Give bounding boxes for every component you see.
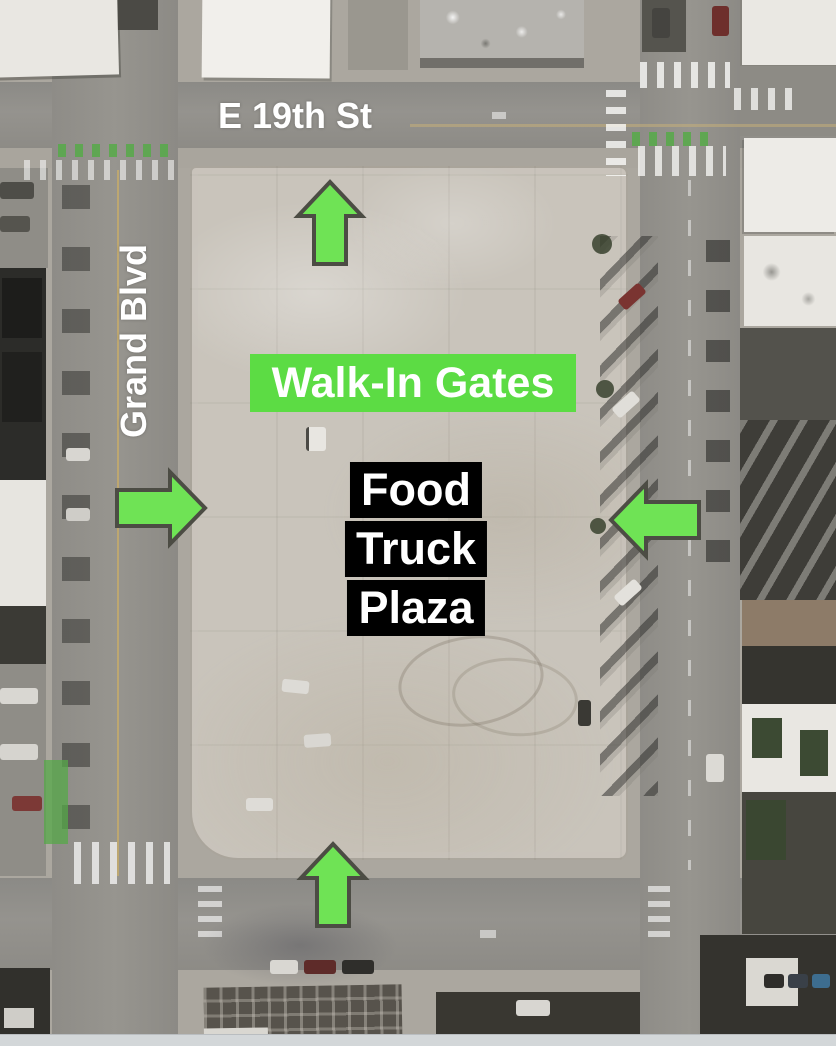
courtyard-landscaping bbox=[752, 718, 782, 758]
parked-car bbox=[516, 1000, 550, 1016]
building-roof bbox=[742, 646, 836, 704]
crosswalk bbox=[648, 886, 670, 942]
tree bbox=[590, 518, 606, 534]
lane-marking bbox=[480, 930, 496, 938]
building-roof bbox=[742, 600, 836, 646]
building-roof bbox=[4, 1008, 34, 1028]
street-label-e-19th-st: E 19th St bbox=[218, 95, 372, 137]
parked-car bbox=[712, 6, 729, 36]
walk-in-gates-label: Walk-In Gates bbox=[250, 354, 576, 412]
crosswalk bbox=[606, 90, 626, 176]
parked-cars bbox=[706, 240, 730, 570]
plaza-label-line: Plaza bbox=[347, 580, 484, 636]
building-roof bbox=[202, 0, 331, 79]
parked-car bbox=[0, 216, 30, 232]
building-roof bbox=[118, 0, 158, 30]
crosswalk bbox=[74, 842, 170, 884]
bike-lane-marking bbox=[58, 144, 176, 157]
crosswalk bbox=[638, 146, 726, 176]
parked-car bbox=[0, 182, 34, 199]
parked-car bbox=[652, 8, 670, 38]
arrow-left-icon bbox=[608, 480, 702, 560]
courtyard-landscaping bbox=[800, 730, 828, 776]
bike-lane-marking bbox=[632, 132, 712, 146]
parked-car bbox=[12, 796, 42, 811]
building-roof bbox=[0, 480, 46, 606]
parked-car bbox=[304, 733, 332, 748]
parked-car bbox=[578, 700, 591, 726]
parked-car bbox=[0, 688, 38, 704]
crosswalk bbox=[640, 62, 730, 88]
building-roof bbox=[420, 0, 584, 68]
parked-car bbox=[342, 960, 374, 974]
arrow-up-icon bbox=[298, 840, 368, 930]
parked-car bbox=[304, 960, 336, 974]
building-roof bbox=[2, 278, 42, 338]
parked-car bbox=[281, 679, 309, 695]
parked-car bbox=[764, 974, 784, 988]
building-roof bbox=[744, 138, 836, 232]
crosswalk bbox=[24, 160, 174, 180]
food-truck-plaza-label: Food Truck Plaza bbox=[345, 462, 487, 636]
building-roof bbox=[742, 0, 836, 65]
parked-van bbox=[306, 427, 326, 451]
parked-car bbox=[270, 960, 298, 974]
lane-marking bbox=[492, 112, 506, 119]
street-label-grand-blvd: Grand Blvd bbox=[113, 244, 155, 438]
building-roof bbox=[0, 0, 119, 78]
courtyard-landscaping bbox=[746, 800, 786, 860]
parked-car bbox=[246, 798, 273, 811]
tree bbox=[592, 234, 612, 254]
building-roof bbox=[744, 236, 836, 326]
parked-car bbox=[66, 448, 90, 461]
tree bbox=[596, 380, 614, 398]
building-roof bbox=[2, 352, 42, 422]
building-roof bbox=[0, 606, 46, 664]
parked-car bbox=[706, 754, 724, 782]
parked-car bbox=[0, 744, 38, 760]
bike-lane-marking bbox=[44, 760, 68, 844]
satellite-map: E 19th St Grand Blvd Walk-In Gates Food … bbox=[0, 0, 836, 1046]
parked-car bbox=[812, 974, 830, 988]
parking-area bbox=[740, 420, 836, 600]
parked-car bbox=[66, 508, 90, 521]
plaza-label-line: Food bbox=[350, 462, 482, 518]
parked-car bbox=[788, 974, 808, 988]
city-block bbox=[740, 328, 836, 420]
crosswalk bbox=[734, 88, 792, 110]
arrow-right-icon bbox=[114, 468, 208, 548]
plaza-label-line: Truck bbox=[345, 521, 487, 577]
building-roof bbox=[348, 0, 408, 70]
image-edge-bar bbox=[0, 1034, 836, 1046]
arrow-up-icon bbox=[295, 179, 365, 267]
